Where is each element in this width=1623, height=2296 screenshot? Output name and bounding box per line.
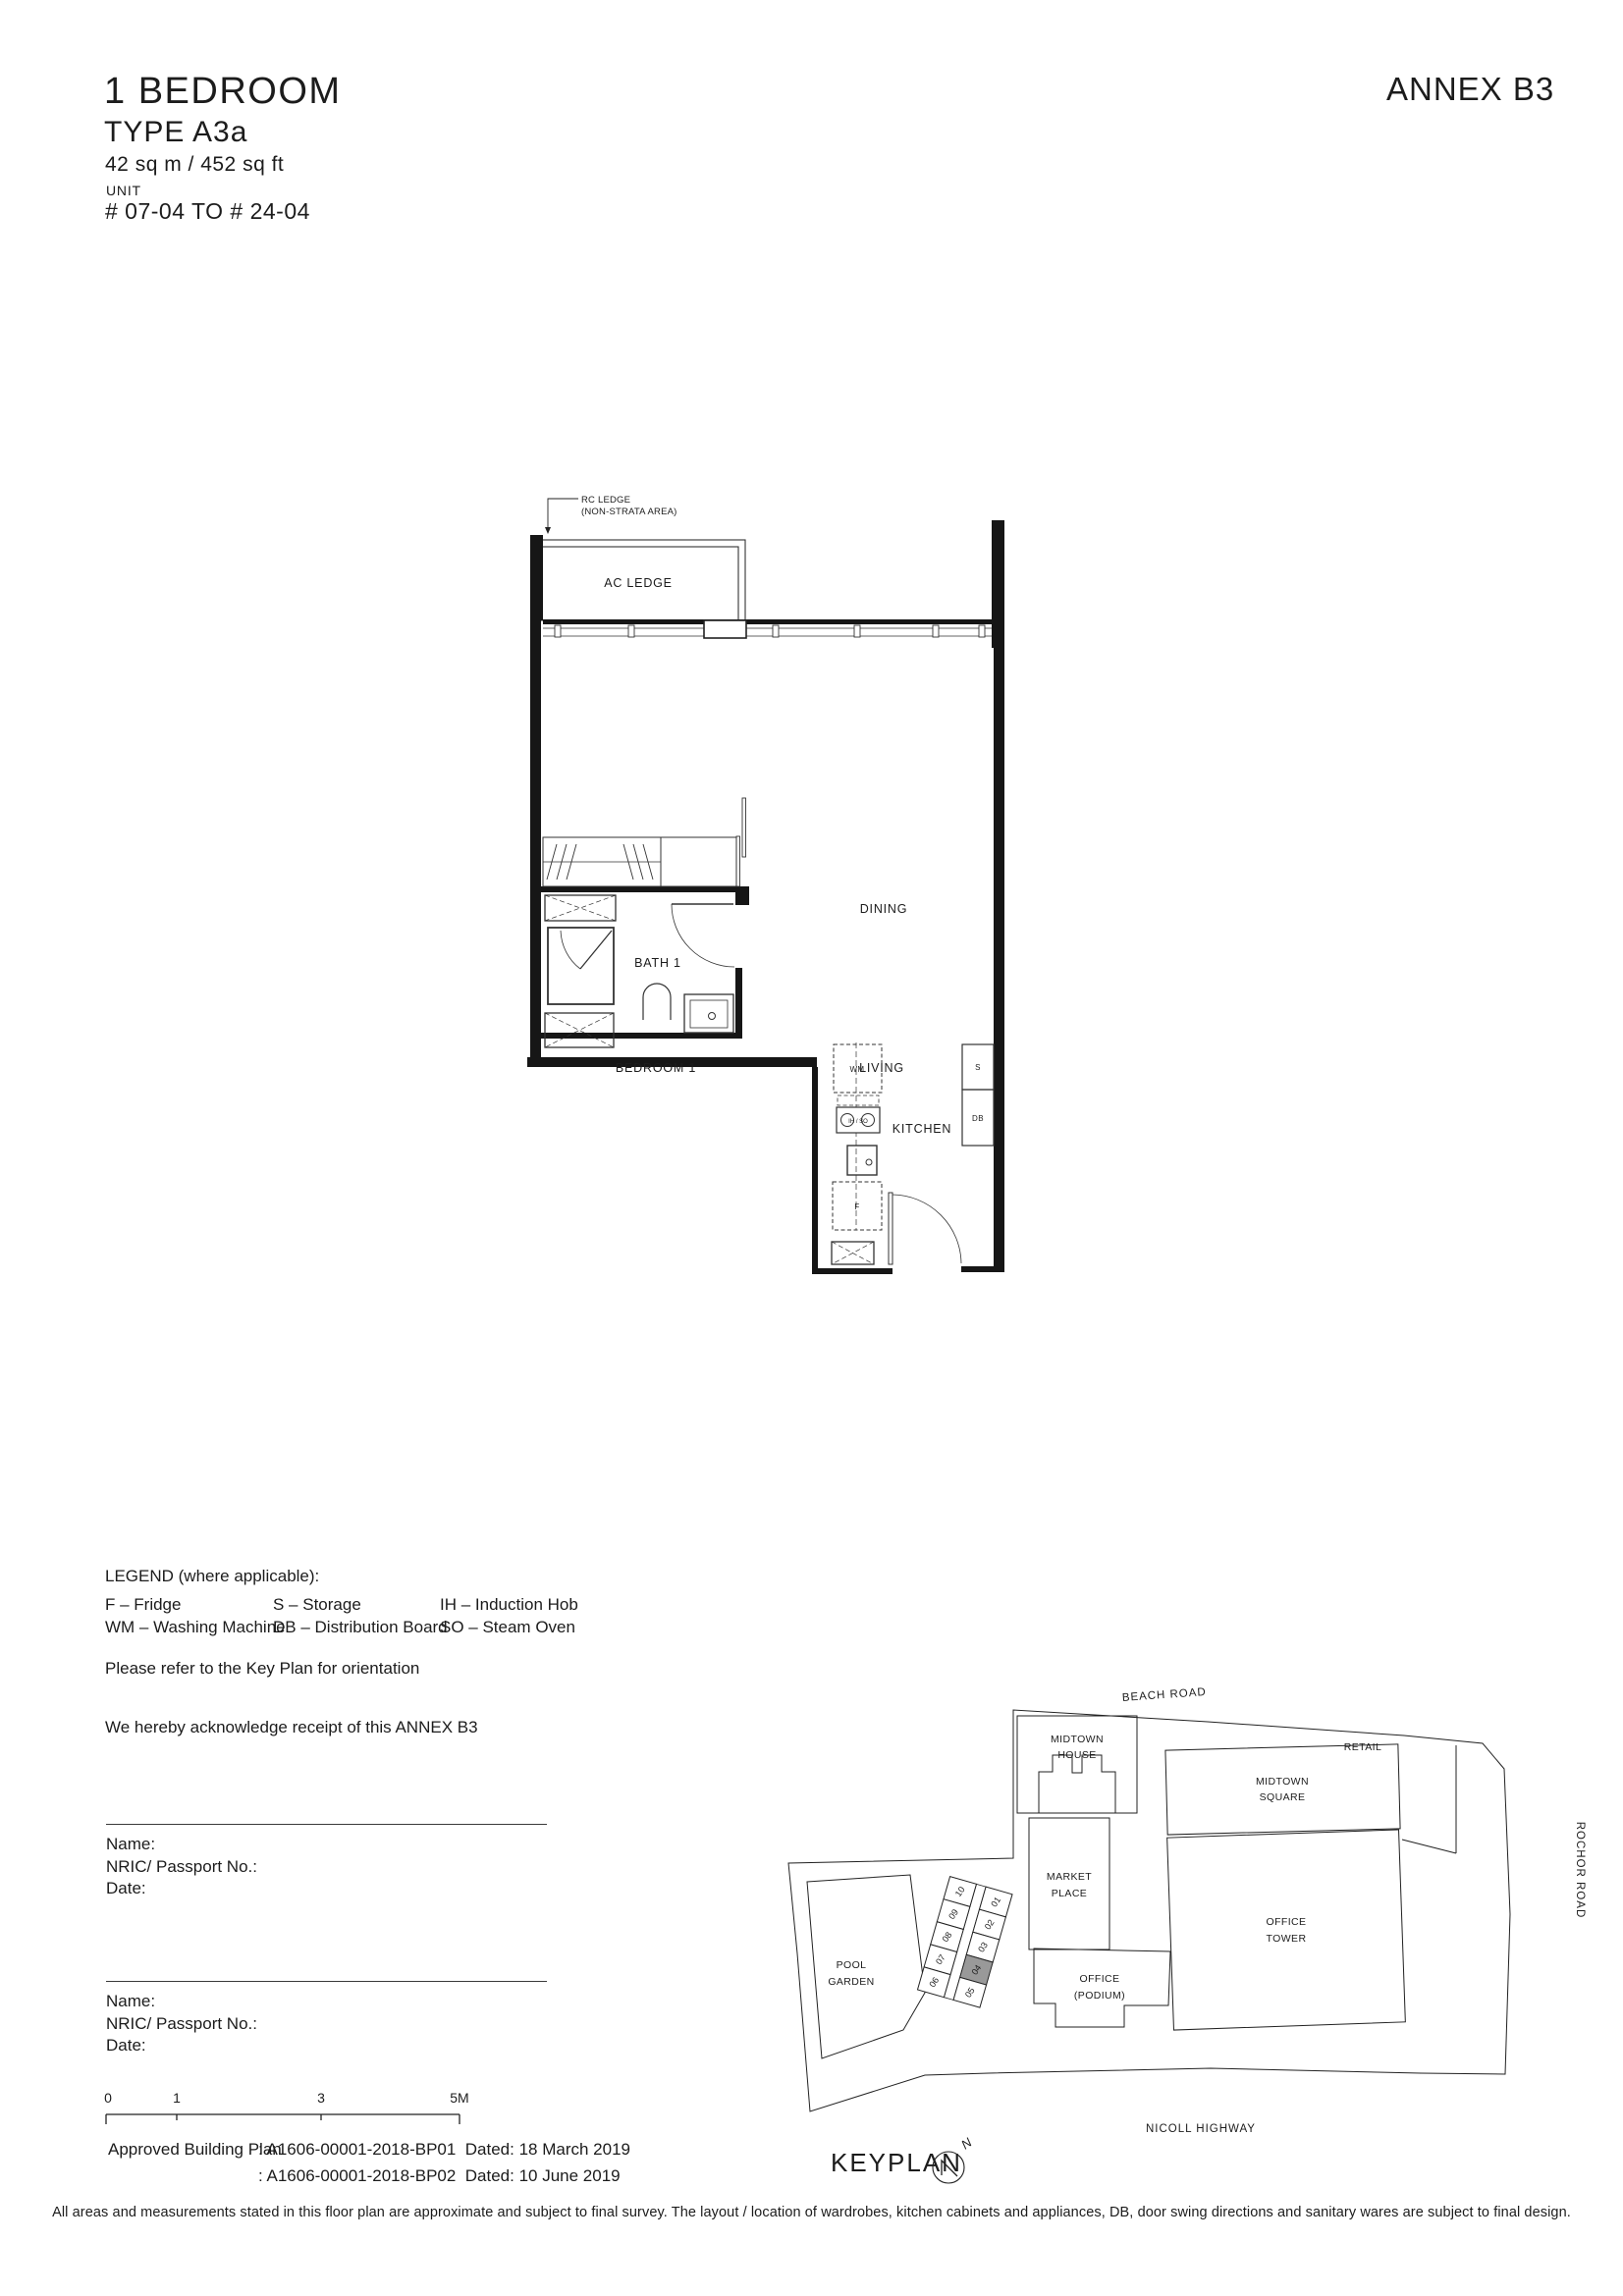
living-label: LIVING (859, 1061, 904, 1075)
market-place-label-2: PLACE (1052, 1888, 1087, 1899)
unit-type: TYPE A3a (104, 116, 247, 149)
unit-range: # 07-04 TO # 24-04 (105, 198, 310, 225)
annex-label: ANNEX B3 (1386, 71, 1554, 108)
orientation-note: Please refer to the Key Plan for orienta… (105, 1659, 419, 1679)
name-label: Name: (106, 1834, 257, 1856)
bedroom-label: BEDROOM 1 (616, 1061, 696, 1075)
residential-tower: 10 09 08 07 06 01 02 03 04 05 (917, 1877, 1012, 2008)
keyplan-title: KEYPLAN (831, 2148, 962, 2177)
scale-5m: 5M (450, 2090, 468, 2106)
approval-line-2: : A1606-00001-2018-BP02 Dated: 10 June 2… (258, 2163, 630, 2189)
balcony-panel (704, 620, 746, 638)
wardrobe (543, 837, 736, 886)
disclaimer-text: All areas and measurements stated in thi… (0, 2205, 1623, 2220)
dining-label: DINING (860, 902, 908, 916)
pool-garden-label-2: GARDEN (828, 1976, 874, 1988)
approval-lines: : A1606-00001-2018-BP01 Dated: 18 March … (258, 2136, 630, 2189)
ih-so-label: IH / SO (848, 1119, 868, 1125)
sliding-partition (736, 798, 746, 886)
office-podium-label-2: (PODIUM) (1074, 1990, 1125, 2002)
receipt-note: We hereby acknowledge receipt of this AN… (105, 1718, 478, 1737)
signature-line (106, 1824, 547, 1825)
legend-item: IH – Induction Hob (440, 1593, 578, 1616)
keyplan-map: MIDTOWN HOUSE MIDTOWN SQUARE OFFICE TOWE… (727, 1590, 1622, 2204)
office-tower-label-2: TOWER (1267, 1933, 1307, 1945)
office-podium-label-1: OFFICE (1080, 1973, 1120, 1985)
kitchen-label: KITCHEN (893, 1122, 951, 1136)
nric-label: NRIC/ Passport No.: (106, 1856, 257, 1879)
date-label: Date: (106, 1878, 257, 1900)
midtown-square: MIDTOWN SQUARE (1165, 1744, 1400, 1835)
legend-col-3: IH – Induction Hob SO – Steam Oven (440, 1593, 578, 1638)
legend-item: F – Fridge (105, 1593, 286, 1616)
fridge-label: F (854, 1202, 859, 1211)
unit-area: 42 sq m / 452 sq ft (105, 153, 284, 177)
unit-label: UNIT (106, 183, 141, 198)
legend-item: DB – Distribution Board (273, 1616, 448, 1638)
retail-label: RETAIL (1344, 1741, 1381, 1753)
kitchen-sink (847, 1146, 877, 1175)
signature-block-1: Name: NRIC/ Passport No.: Date: (106, 1834, 257, 1900)
retail-area (1402, 1745, 1456, 1853)
rc-ledge-text-1: RC LEDGE (581, 495, 630, 506)
db-label: DB (972, 1114, 984, 1123)
midtown-house-label-2: HOUSE (1057, 1749, 1096, 1761)
market-place: MARKET PLACE (1029, 1818, 1109, 1949)
storage-db (962, 1044, 994, 1146)
rc-ledge-text-2: (NON-STRATA AREA) (581, 507, 677, 517)
page-title: 1 BEDROOM (104, 71, 342, 113)
shower (548, 928, 614, 1004)
name-label: Name: (106, 1991, 257, 2013)
pool-garden: POOL GARDEN (807, 1875, 925, 2058)
midtown-square-label-1: MIDTOWN (1256, 1776, 1309, 1788)
rc-ledge-note: RC LEDGE (NON-STRATA AREA) (545, 495, 677, 534)
induction-hob: IH / SO (837, 1107, 880, 1133)
scale-bar-line (106, 2114, 460, 2124)
midtown-house-label-1: MIDTOWN (1051, 1734, 1104, 1745)
entry-door (889, 1193, 961, 1264)
pool-garden-label-1: POOL (837, 1959, 867, 1971)
hatched-box (545, 895, 874, 1264)
legend-item: S – Storage (273, 1593, 448, 1616)
leader-arrow-icon (545, 527, 551, 534)
vanity-basin (684, 994, 733, 1033)
legend-item: SO – Steam Oven (440, 1616, 578, 1638)
market-place-label-1: MARKET (1047, 1871, 1092, 1883)
floor-plan: RC LEDGE (NON-STRATA AREA) AC LEDGE (525, 334, 1031, 1281)
scale-0: 0 (104, 2090, 112, 2106)
legend-col-2: S – Storage DB – Distribution Board (273, 1593, 448, 1638)
storage-label: S (975, 1063, 981, 1072)
scale-bar: 0 1 3 5M (98, 2089, 481, 2130)
approval-line-1: : A1606-00001-2018-BP01 Dated: 18 March … (258, 2136, 630, 2163)
nric-label: NRIC/ Passport No.: (106, 2013, 257, 2036)
beach-road-label: BEACH ROAD (1121, 1686, 1207, 1704)
signature-block-2: Name: NRIC/ Passport No.: Date: (106, 1991, 257, 2057)
approval-label: Approved Building Plan (108, 2136, 282, 2163)
midtown-square-label-2: SQUARE (1260, 1791, 1306, 1803)
bath-label: BATH 1 (634, 956, 681, 970)
legend-col-1: F – Fridge WM – Washing Machine (105, 1593, 286, 1638)
toilet (643, 984, 671, 1020)
nicoll-highway-label: NICOLL HIGHWAY (1146, 2123, 1256, 2135)
midtown-house: MIDTOWN HOUSE (1017, 1716, 1137, 1813)
ac-ledge: AC LEDGE (531, 540, 745, 620)
legend-item: WM – Washing Machine (105, 1616, 286, 1638)
floorplan-annex-page: 1 BEDROOM TYPE A3a 42 sq m / 452 sq ft U… (0, 0, 1623, 2296)
leader-line (548, 499, 578, 527)
office-tower-label-1: OFFICE (1267, 1916, 1307, 1928)
rochor-road-label: ROCHOR ROAD (1574, 1822, 1586, 1919)
date-label: Date: (106, 2035, 257, 2057)
scale-1: 1 (173, 2090, 181, 2106)
ac-ledge-label: AC LEDGE (604, 576, 673, 590)
legend-heading: LEGEND (where applicable): (105, 1567, 319, 1586)
signature-line (106, 1981, 547, 1982)
office-tower: OFFICE TOWER (1167, 1830, 1406, 2030)
scale-3: 3 (317, 2090, 325, 2106)
office-podium: OFFICE (PODIUM) (1034, 1949, 1170, 2027)
